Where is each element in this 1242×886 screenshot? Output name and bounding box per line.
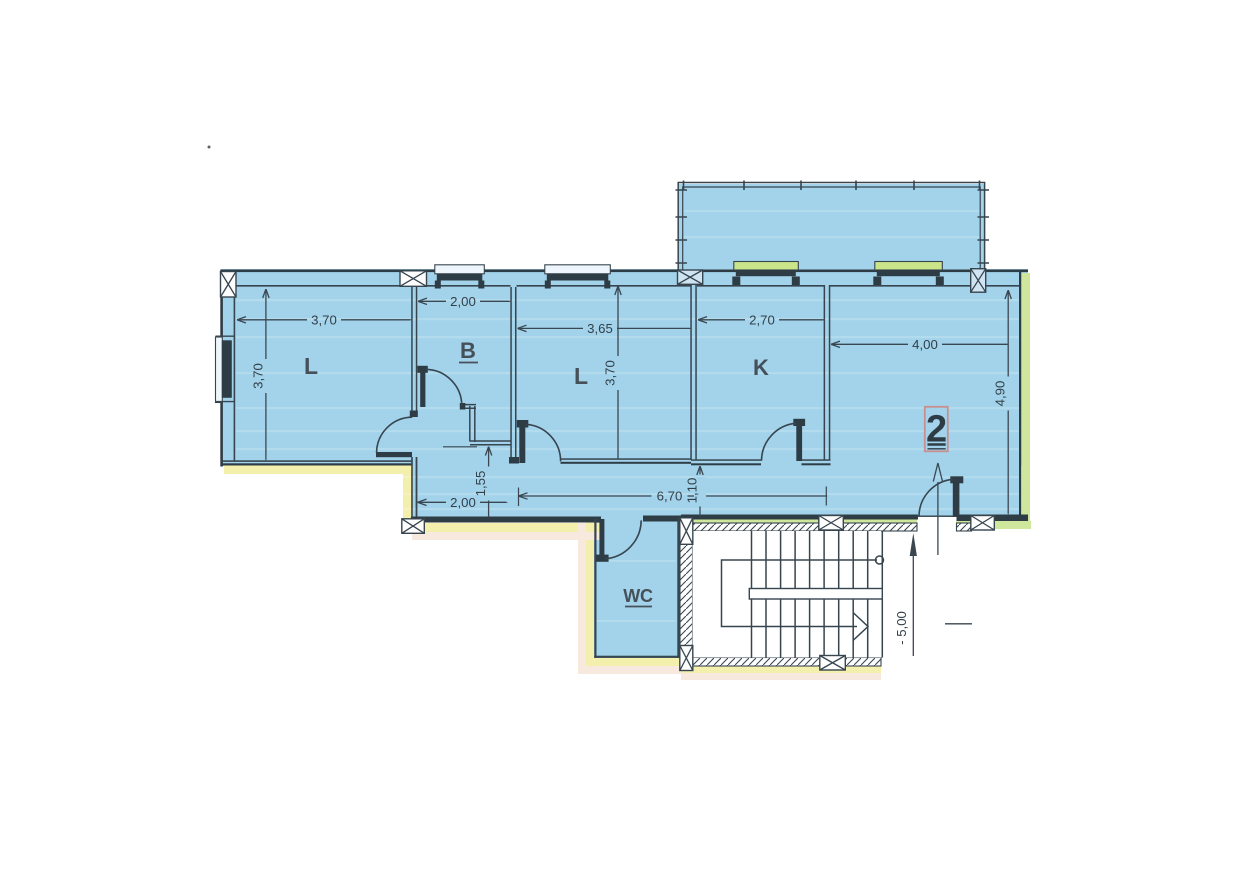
svg-text:K: K [753, 355, 769, 380]
svg-text:L: L [574, 363, 588, 389]
svg-text:2,70: 2,70 [749, 312, 775, 327]
svg-text:WC: WC [623, 586, 653, 606]
svg-text:- 5,00: - 5,00 [894, 611, 909, 645]
svg-text:6,70: 6,70 [657, 489, 683, 504]
svg-text:L: L [304, 353, 318, 379]
svg-text:2,00: 2,00 [450, 294, 476, 309]
svg-text:4,90: 4,90 [993, 381, 1008, 407]
svg-text:3,65: 3,65 [587, 321, 613, 336]
svg-text:3,70: 3,70 [603, 360, 618, 386]
svg-text:4,00: 4,00 [912, 337, 938, 352]
svg-text:2,00: 2,00 [450, 495, 476, 510]
svg-text:3,70: 3,70 [250, 363, 265, 389]
svg-text:1,55: 1,55 [473, 471, 488, 497]
svg-text:B: B [460, 338, 476, 363]
svg-text:1,10: 1,10 [685, 478, 700, 504]
svg-text:3,70: 3,70 [311, 312, 337, 327]
